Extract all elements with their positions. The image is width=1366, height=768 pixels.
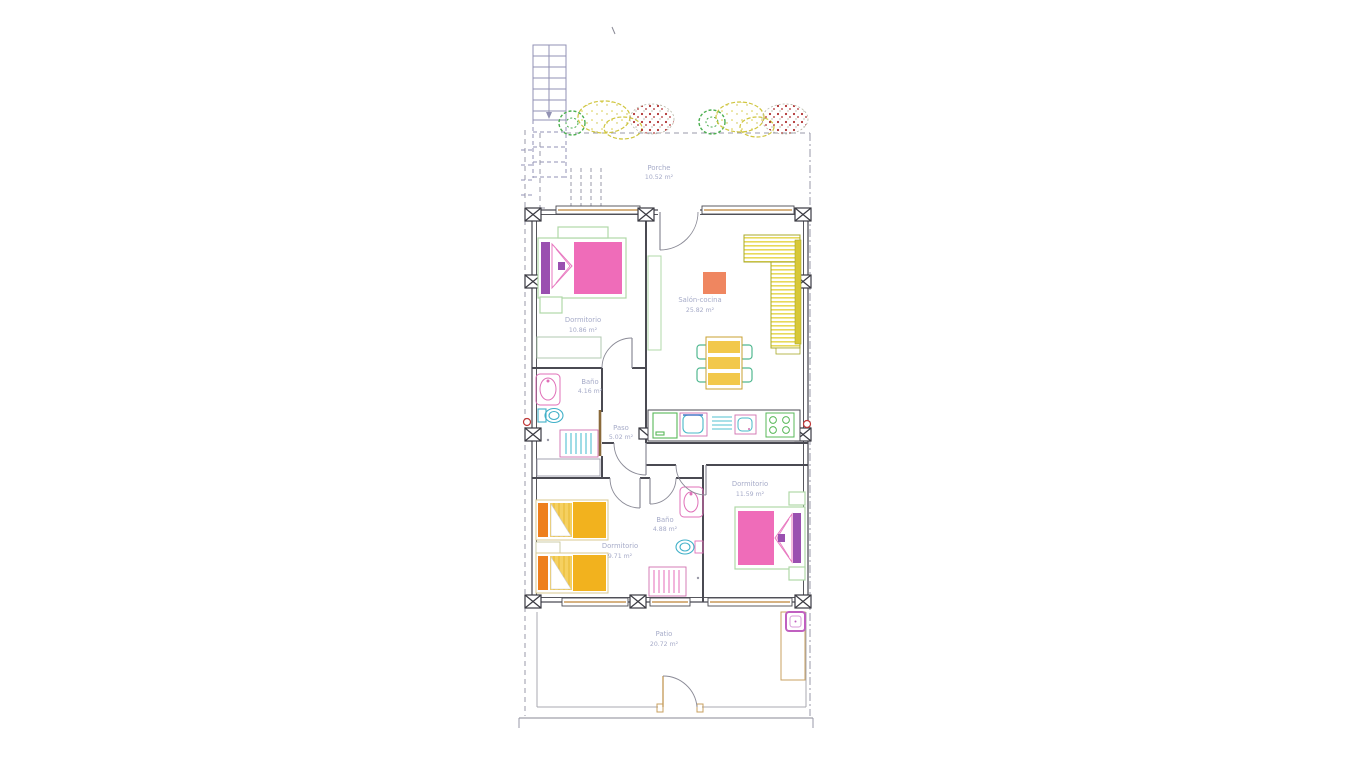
room-label-dormitorio1: Dormitorio bbox=[565, 316, 601, 324]
valve-icon bbox=[524, 419, 531, 426]
room-area-porche: 10.52 m² bbox=[645, 174, 674, 181]
room-label-paso: Paso bbox=[613, 424, 629, 432]
washing-machine bbox=[786, 612, 805, 631]
kitchen-counter bbox=[648, 410, 800, 441]
room-area-bano2: 4.88 m² bbox=[653, 526, 678, 533]
room-area-dormitorio1: 10.86 m² bbox=[569, 327, 598, 334]
bed-single-2 bbox=[536, 553, 608, 593]
nightstand bbox=[536, 542, 560, 553]
patio-door bbox=[657, 676, 703, 712]
bush-berries-icon bbox=[762, 104, 808, 134]
pillar bbox=[525, 208, 541, 221]
planting-bed-right bbox=[699, 102, 808, 137]
room-area-bano1: 4.16 m² bbox=[578, 388, 603, 395]
room-label-patio: Patio bbox=[656, 630, 673, 638]
room-area-paso: 5.02 m² bbox=[609, 434, 634, 441]
porch-steps bbox=[571, 168, 601, 206]
dresser bbox=[537, 337, 601, 358]
bed-single-1 bbox=[536, 500, 608, 540]
pillar bbox=[630, 595, 646, 608]
room-label-bano1: Baño bbox=[581, 378, 598, 386]
room-area-patio: 20.72 m² bbox=[650, 641, 679, 648]
valve-icon bbox=[804, 421, 811, 428]
bush-yellow-icon bbox=[578, 101, 630, 133]
pillar bbox=[525, 595, 541, 608]
bush-berries-icon bbox=[630, 104, 674, 134]
room-label-salon: Salón-cocina bbox=[678, 296, 721, 304]
pillar bbox=[795, 208, 811, 221]
room-area-salon: 25.82 m² bbox=[686, 307, 715, 314]
rug bbox=[703, 272, 726, 294]
floor-plan-canvas: Porche 10.52 m² Dormitorio 10.86 m² Saló… bbox=[0, 0, 1366, 768]
patio-outline bbox=[537, 612, 806, 707]
floor-plan-drawing: Porche 10.52 m² Dormitorio 10.86 m² Saló… bbox=[0, 0, 1366, 768]
room-area-dormitorio2: 11.59 m² bbox=[736, 491, 765, 498]
pillar bbox=[795, 595, 811, 608]
room-label-porche: Porche bbox=[648, 164, 671, 172]
room-label-dormitorio2: Dormitorio bbox=[732, 480, 768, 488]
pillar bbox=[638, 208, 654, 221]
room-label-dormitorio3: Dormitorio bbox=[602, 542, 638, 550]
room-label-bano2: Baño bbox=[656, 516, 673, 524]
room-area-dormitorio3: 9.71 m² bbox=[608, 553, 633, 560]
pillar bbox=[525, 428, 541, 441]
